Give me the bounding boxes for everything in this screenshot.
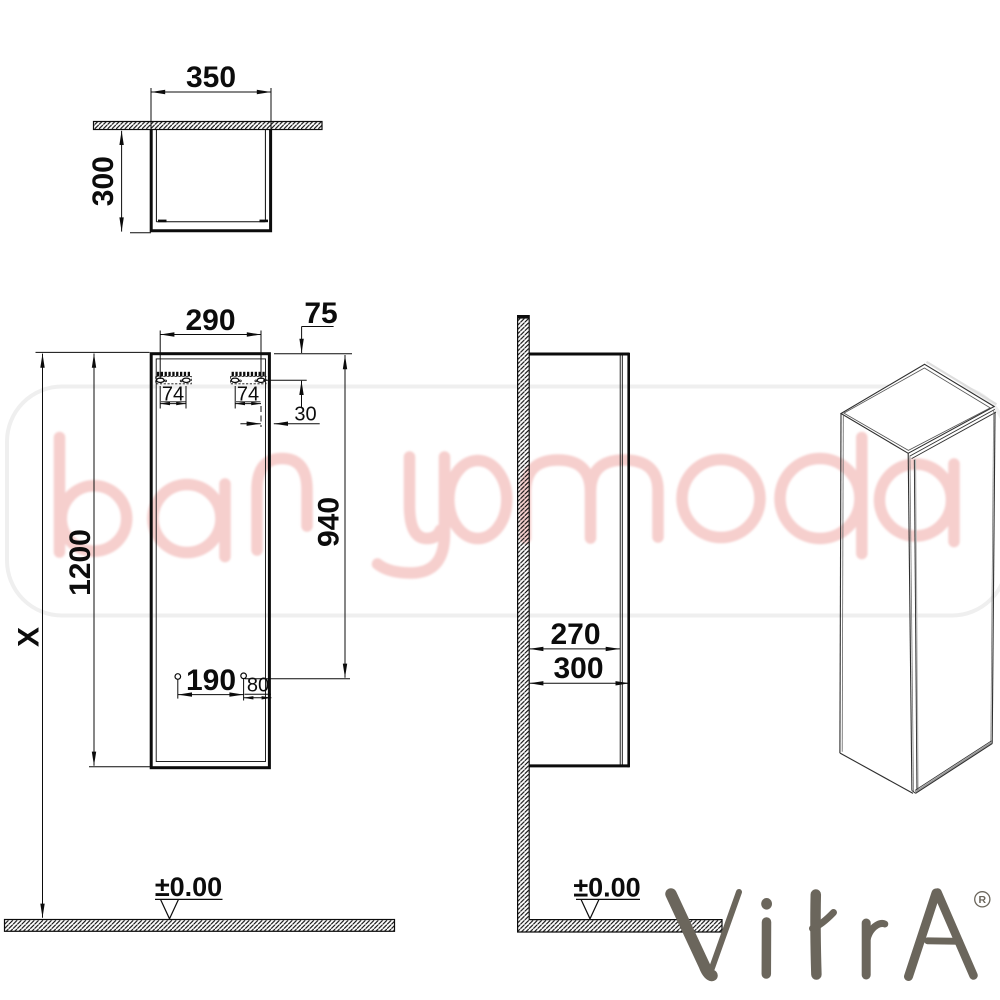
svg-text:±0.00: ±0.00	[573, 873, 640, 903]
svg-text:270: 270	[550, 618, 600, 651]
svg-text:30: 30	[294, 404, 316, 426]
svg-text:1200: 1200	[64, 529, 97, 596]
svg-text:300: 300	[553, 652, 603, 685]
svg-text:300: 300	[87, 156, 120, 206]
svg-text:80: 80	[247, 675, 269, 697]
svg-text:74: 74	[162, 384, 184, 406]
svg-text:940: 940	[313, 497, 346, 547]
svg-text:±0.00: ±0.00	[155, 872, 222, 902]
svg-text:X: X	[13, 627, 46, 647]
svg-text:R: R	[979, 894, 987, 906]
svg-text:74: 74	[237, 384, 259, 406]
svg-text:75: 75	[304, 297, 337, 330]
svg-text:290: 290	[185, 304, 235, 337]
svg-text:350: 350	[186, 61, 236, 94]
svg-text:190: 190	[186, 664, 236, 697]
